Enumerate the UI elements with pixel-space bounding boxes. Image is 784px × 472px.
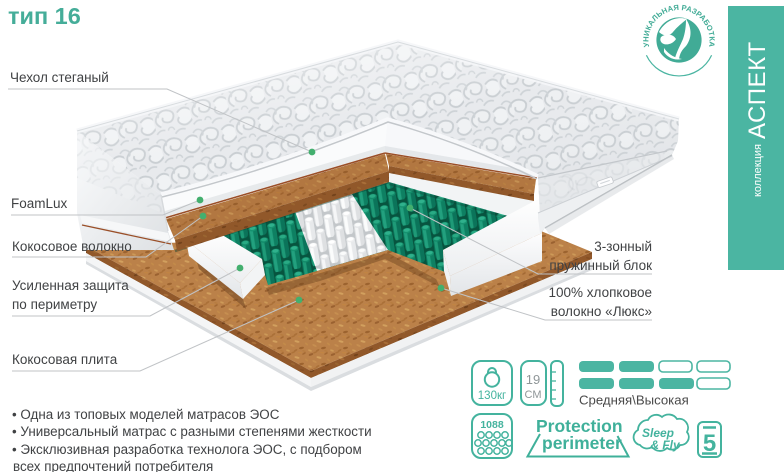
svg-text:по периметру: по периметру xyxy=(12,297,97,312)
svg-text:130кг: 130кг xyxy=(478,390,506,402)
svg-text:19: 19 xyxy=(526,372,540,387)
svg-text:1088: 1088 xyxy=(480,419,504,431)
svg-text:СМ: СМ xyxy=(525,389,542,401)
svg-text:Усиленная защита: Усиленная защита xyxy=(12,278,129,293)
svg-text:perimeter: perimeter xyxy=(542,433,622,453)
svg-text:• Одна из топовых моделей матр: • Одна из топовых моделей матрасов ЭОС xyxy=(12,407,280,422)
svg-text:всех предпочтений потребителя: всех предпочтений потребителя xyxy=(13,459,213,472)
svg-text:Средняя\Высокая: Средняя\Высокая xyxy=(579,393,689,408)
svg-text:3-зонный: 3-зонный xyxy=(594,239,652,254)
svg-text:тип 16: тип 16 xyxy=(8,3,81,29)
svg-text:100% хлопковое: 100% хлопковое xyxy=(549,285,652,300)
svg-text:АСПЕКТ: АСПЕКТ xyxy=(744,41,771,139)
svg-text:пружинный блок: пружинный блок xyxy=(549,258,652,273)
svg-text:коллекция: коллекция xyxy=(752,144,764,197)
svg-text:& Fly: & Fly xyxy=(650,438,681,452)
svg-text:• Универсальный матрас с разны: • Универсальный матрас с разными степеня… xyxy=(12,424,372,439)
svg-text:Кокосовая плита: Кокосовая плита xyxy=(12,352,118,367)
svg-text:Чехол стеганый: Чехол стеганый xyxy=(10,70,109,85)
svg-text:волокно «Люкс»: волокно «Люкс» xyxy=(551,304,652,319)
svg-text:• Эксклюзивная разработка техн: • Эксклюзивная разработка технолога ЭОС,… xyxy=(12,442,362,457)
svg-text:FoamLux: FoamLux xyxy=(11,196,68,211)
svg-text:Кокосовое волокно: Кокосовое волокно xyxy=(12,239,132,254)
